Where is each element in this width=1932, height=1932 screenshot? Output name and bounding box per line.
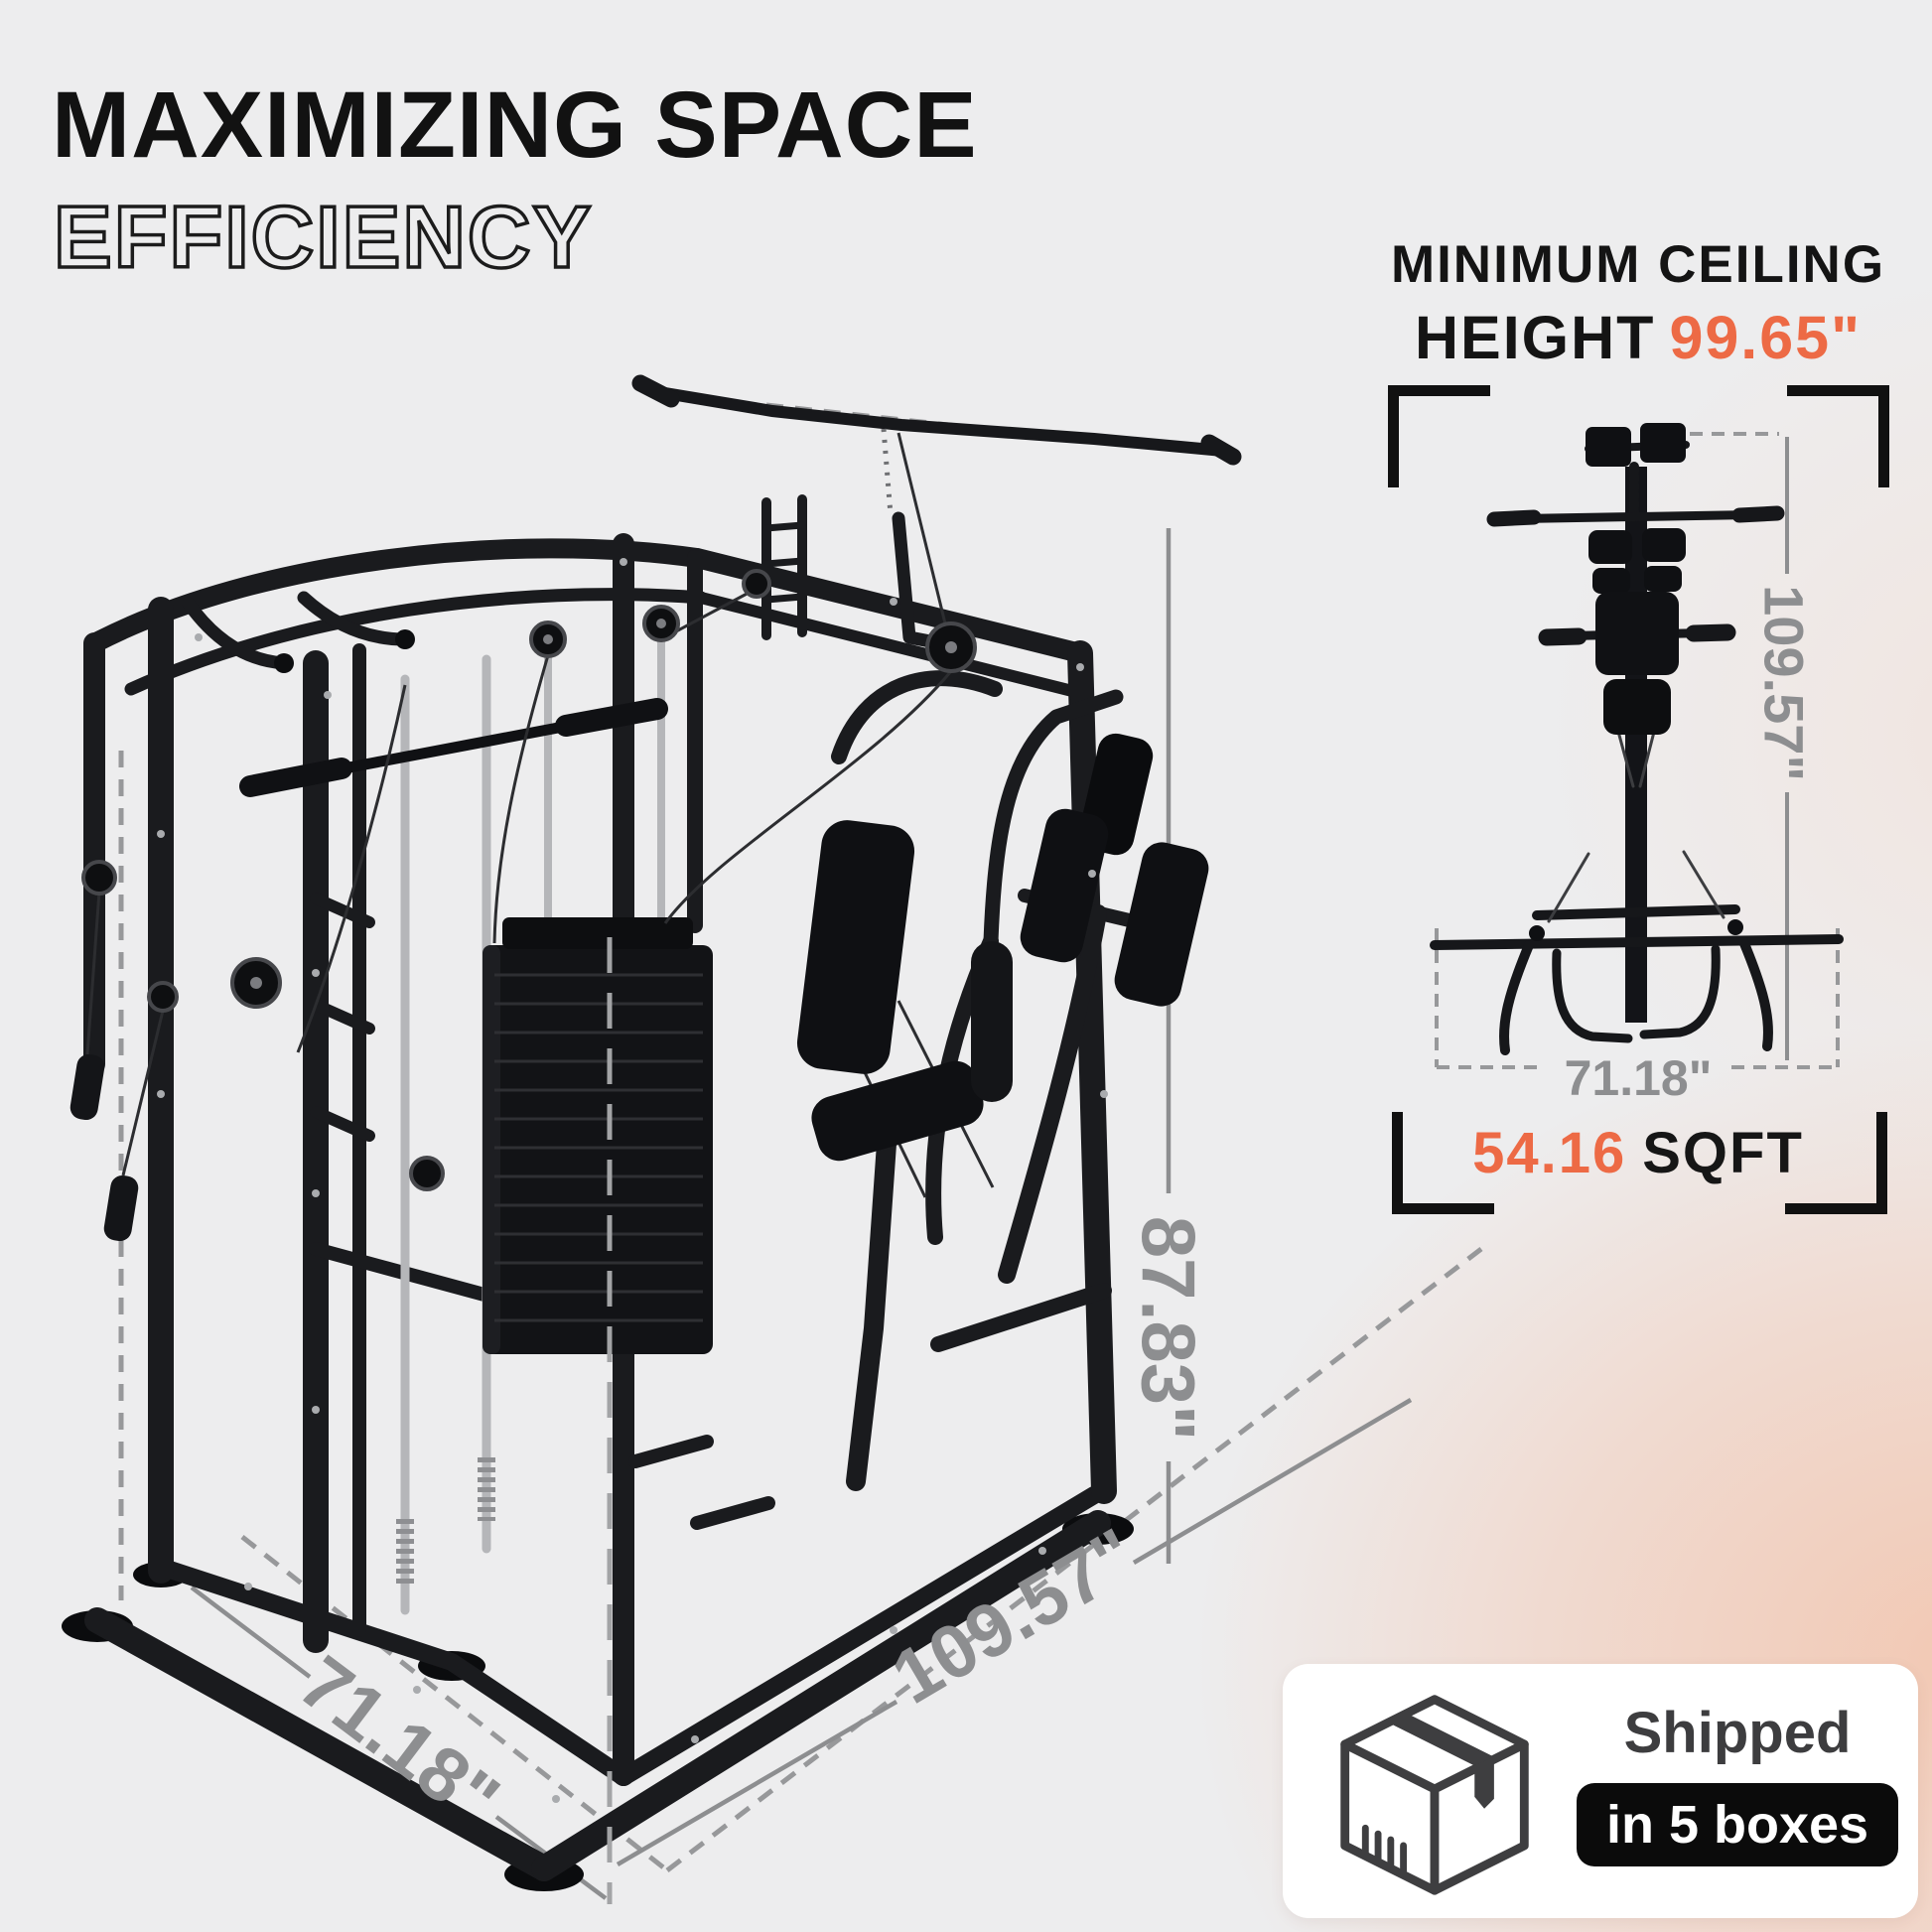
shipping-badge: in 5 boxes xyxy=(1577,1783,1898,1866)
infographic-canvas: MAXIMIZING SPACE EFFICIENCY MINIMUM CEIL… xyxy=(0,0,1932,1932)
dimension-label-topview-width: 71.18" xyxy=(1565,1049,1713,1107)
headline-secondary-outline: EFFICIENCY xyxy=(54,187,593,288)
ceiling-note-line1: MINIMUM CEILING xyxy=(1340,234,1932,295)
shipping-info-card: Shipped in 5 boxes xyxy=(1283,1664,1918,1918)
machine-chain xyxy=(884,429,891,514)
footprint-area-value: 54.16 xyxy=(1472,1121,1626,1185)
footprint-area-unit: SQFT xyxy=(1642,1121,1804,1185)
crop-bracket-top-right xyxy=(1787,385,1889,487)
machine-lat-pulldown-bar xyxy=(640,383,1233,457)
ceiling-note-label: HEIGHT xyxy=(1415,304,1655,371)
shipping-label: Shipped xyxy=(1569,1700,1906,1766)
machine-weight-stack xyxy=(483,917,713,1354)
crop-bracket-top-left xyxy=(1388,385,1490,487)
ceiling-note-line2: HEIGHT99.65" xyxy=(1340,303,1932,372)
footprint-area-line: 54.16SQFT xyxy=(1340,1120,1932,1186)
machine-rod-springs xyxy=(405,1457,486,1588)
dimension-label-topview-height: 109.57" xyxy=(1752,585,1817,781)
headline-primary: MAXIMIZING SPACE xyxy=(52,71,978,180)
dimension-label-machine-height: 87.83" xyxy=(1125,1216,1211,1441)
ceiling-height-note: MINIMUM CEILING HEIGHT99.65" xyxy=(1340,234,1932,372)
ceiling-height-value: 99.65" xyxy=(1669,304,1862,371)
shipping-box-icon xyxy=(1320,1686,1549,1898)
